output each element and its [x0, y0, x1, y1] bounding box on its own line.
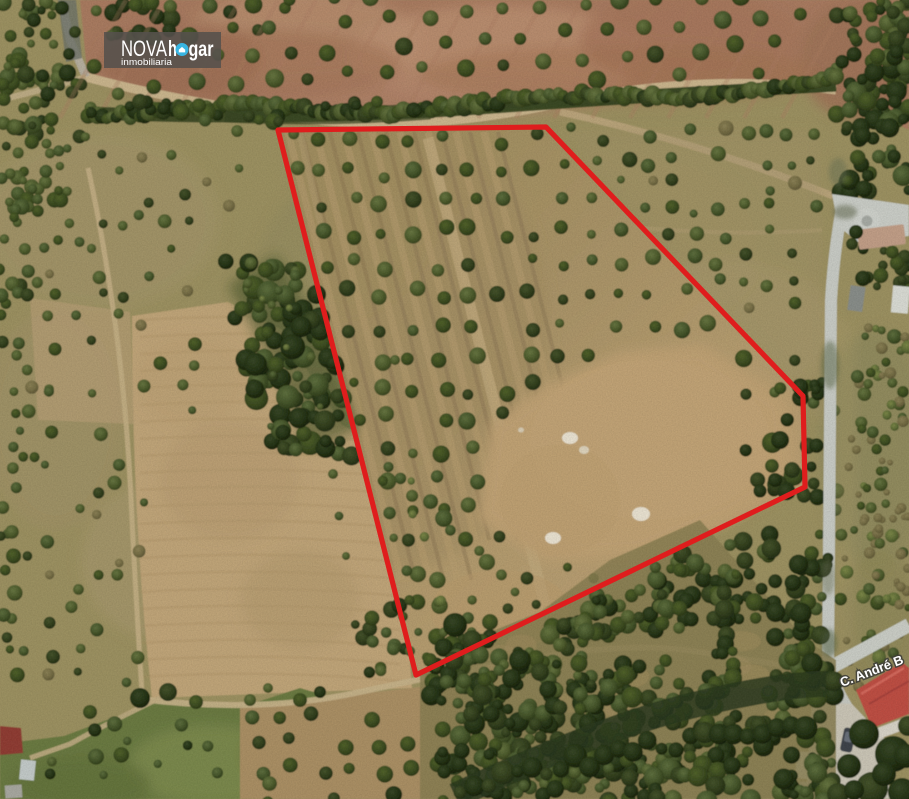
svg-text:inmobiliaria: inmobiliaria	[121, 57, 173, 68]
svg-text:gar: gar	[189, 38, 214, 61]
